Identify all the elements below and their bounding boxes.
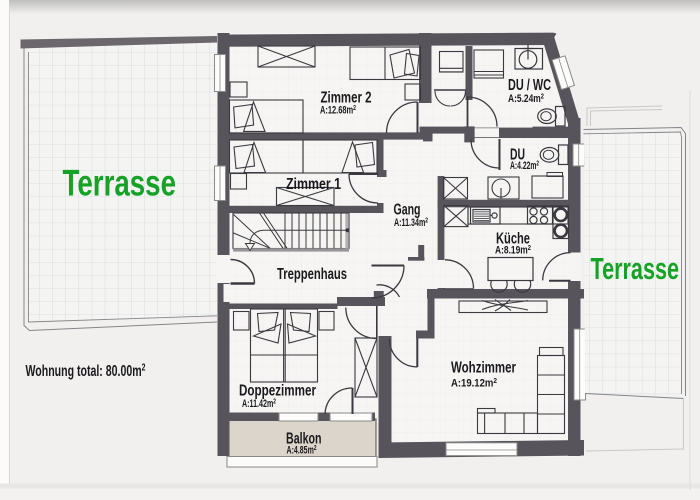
svg-text:Wohzimmer: Wohzimmer: [451, 360, 516, 377]
svg-text:A:11.42m2: A:11.42m2: [242, 397, 276, 411]
svg-text:Doppezimmer: Doppezimmer: [239, 383, 316, 400]
svg-text:Zimmer 1: Zimmer 1: [286, 176, 341, 193]
svg-text:A:12.68m2: A:12.68m2: [320, 103, 356, 117]
svg-text:A:5.24m2: A:5.24m2: [508, 92, 544, 106]
svg-text:Treppenhaus: Treppenhaus: [277, 266, 347, 283]
svg-text:A:4.22m2: A:4.22m2: [510, 159, 539, 173]
svg-text:Terrasse: Terrasse: [591, 252, 680, 286]
svg-text:Gang: Gang: [394, 202, 421, 219]
svg-text:Wohnung total: 80.00m2: Wohnung total: 80.00m2: [26, 362, 146, 381]
svg-text:A:8.19m2: A:8.19m2: [495, 243, 531, 257]
svg-text:A:11.34m2: A:11.34m2: [394, 216, 428, 230]
svg-text:A:19.12m2: A:19.12m2: [451, 376, 497, 390]
svg-text:Terrasse: Terrasse: [63, 163, 177, 204]
svg-text:A:4.85m2: A:4.85m2: [287, 443, 317, 457]
svg-text:DU / WC: DU / WC: [508, 77, 551, 94]
